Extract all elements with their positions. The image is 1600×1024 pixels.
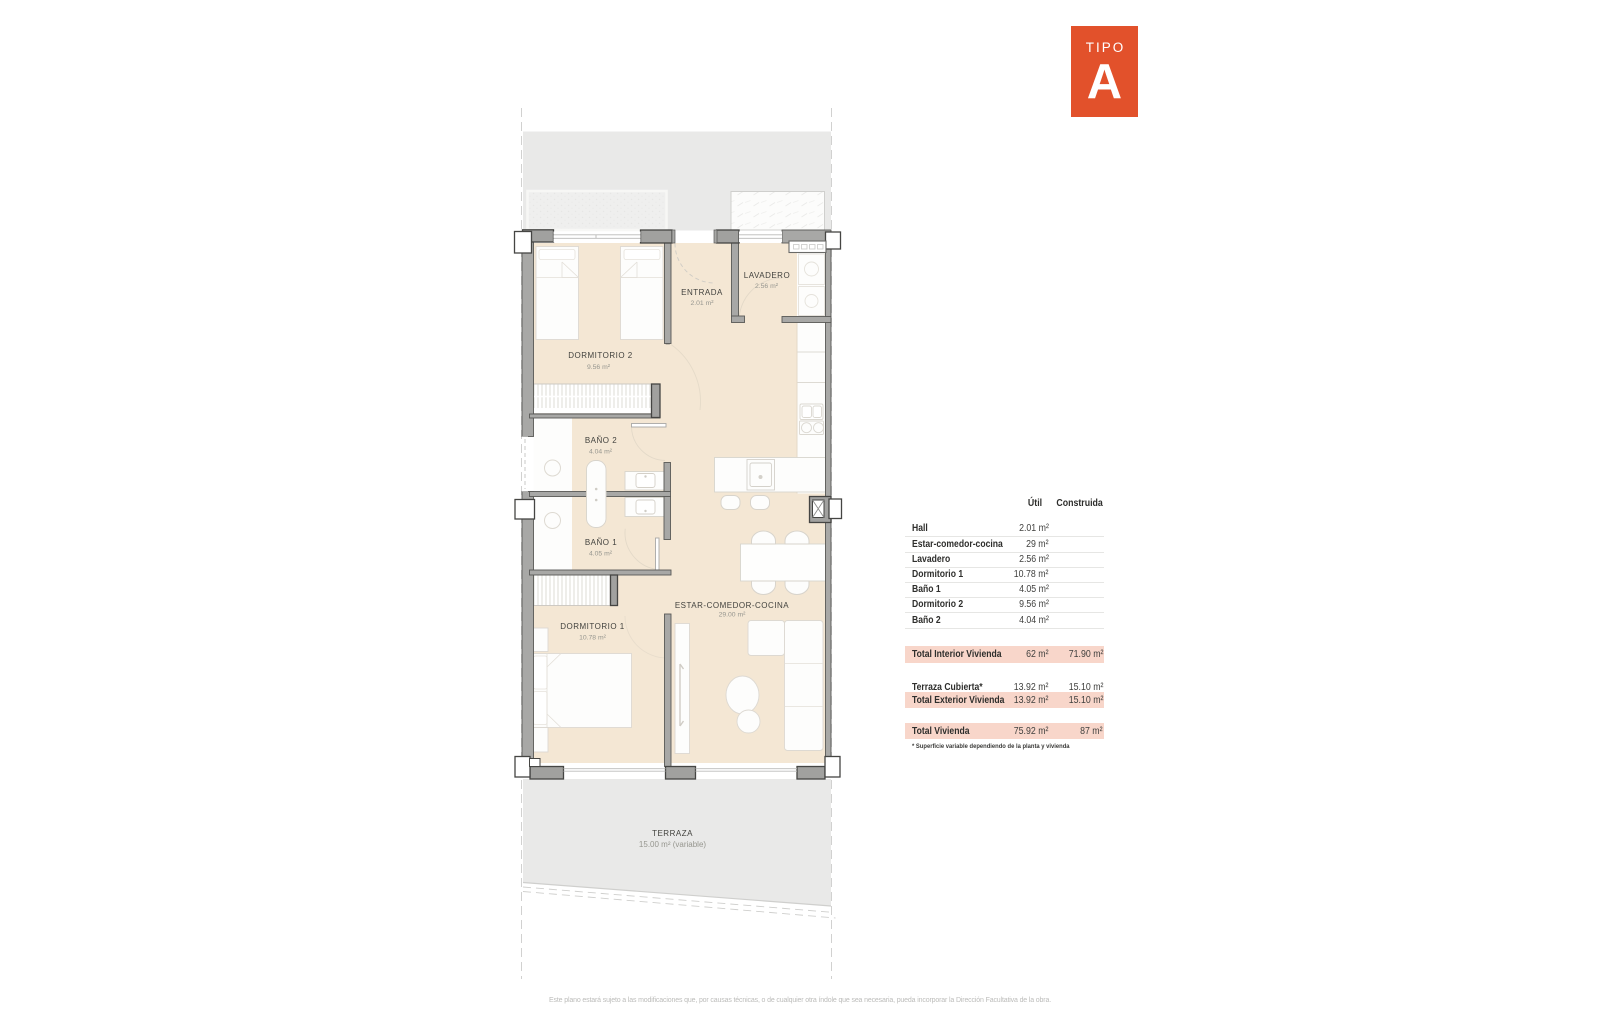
svg-text:ESTAR-COMEDOR-COCINA: ESTAR-COMEDOR-COCINA <box>675 601 789 610</box>
svg-text:DORMITORIO 2: DORMITORIO 2 <box>568 351 633 360</box>
svg-text:15.00 m² (variable): 15.00 m² (variable) <box>639 840 706 849</box>
svg-text:4.05 m²: 4.05 m² <box>589 551 613 558</box>
svg-text:10.78 m²: 10.78 m² <box>579 635 607 642</box>
svg-text:BAÑO 1: BAÑO 1 <box>585 538 617 547</box>
svg-text:2.01 m²: 2.01 m² <box>690 300 714 307</box>
svg-text:29.00 m²: 29.00 m² <box>719 612 747 619</box>
svg-text:DORMITORIO 1: DORMITORIO 1 <box>560 622 625 631</box>
svg-text:ENTRADA: ENTRADA <box>681 288 723 297</box>
svg-text:2.56 m²: 2.56 m² <box>755 283 779 290</box>
svg-text:BAÑO 2: BAÑO 2 <box>585 436 617 445</box>
svg-text:9.56 m²: 9.56 m² <box>587 364 611 371</box>
svg-text:LAVADERO: LAVADERO <box>744 271 790 280</box>
svg-text:4.04 m²: 4.04 m² <box>589 449 613 456</box>
svg-text:TERRAZA: TERRAZA <box>652 829 693 838</box>
